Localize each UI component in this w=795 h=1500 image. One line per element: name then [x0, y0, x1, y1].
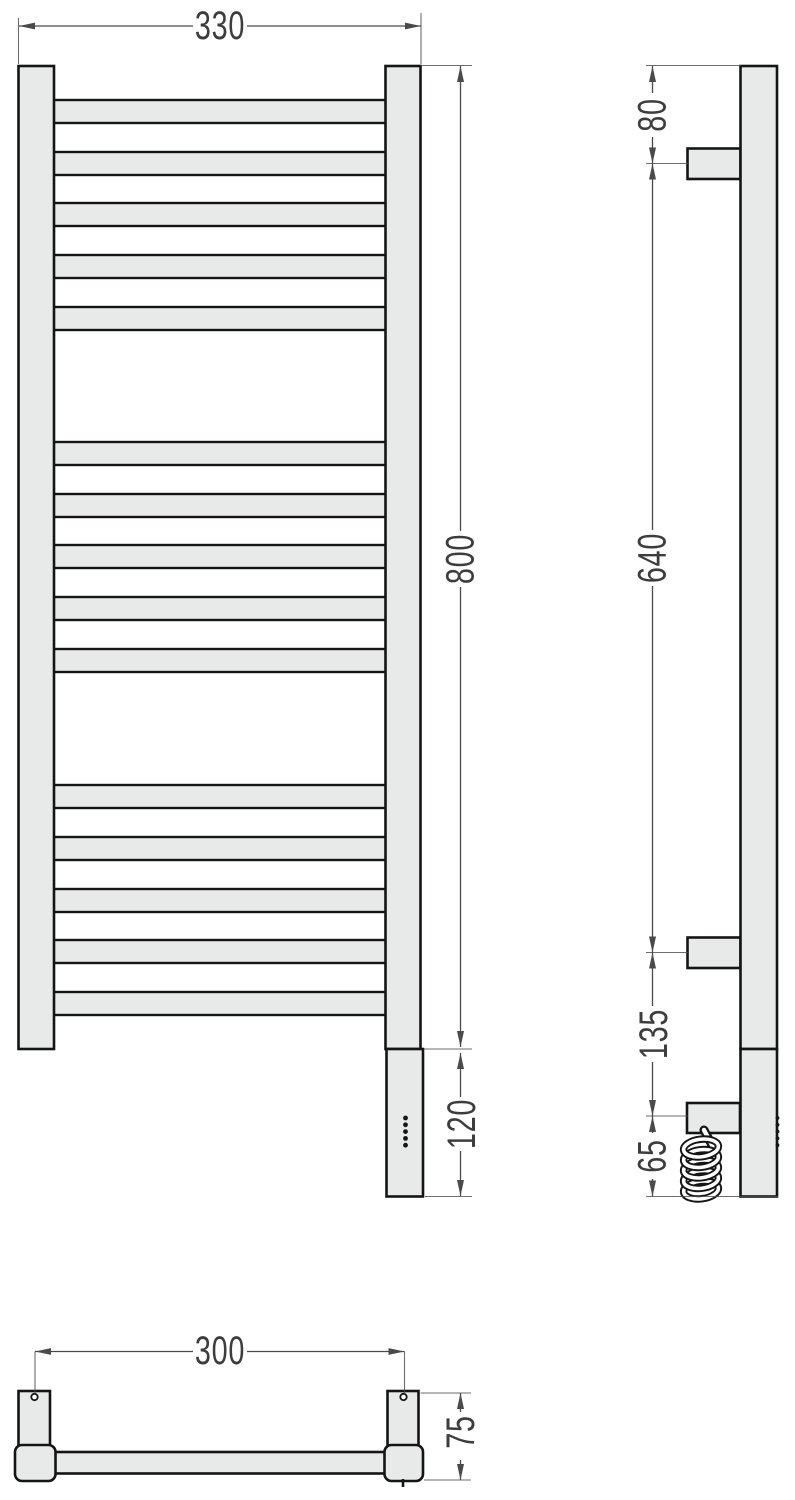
dimension-arrow [405, 23, 421, 30]
dimension-arrow [457, 1053, 464, 1069]
rung [51, 889, 388, 912]
dimension-arrow [649, 1116, 656, 1132]
led-dot [403, 1143, 408, 1148]
dimension-arrow [649, 1181, 656, 1197]
rung [51, 307, 388, 330]
side-wall-bracket-bottom [688, 938, 741, 969]
dimension-arrow [649, 66, 656, 82]
led-dot [403, 1116, 408, 1121]
front-right-rail [386, 66, 421, 1049]
dim-label-plan-depth: 75 [439, 1415, 484, 1448]
led-dot [403, 1136, 408, 1141]
rung [51, 152, 388, 175]
front-view [19, 66, 424, 1197]
dim-label-heater-height: 120 [440, 1099, 485, 1149]
dim-label-side-bracket-span: 640 [630, 533, 675, 583]
mount-hole-right [400, 1394, 406, 1400]
led-dot [403, 1122, 408, 1127]
dimension-arrow [649, 164, 656, 180]
rung [51, 837, 388, 860]
drawing-svg: 330 800 120 80 640 135 [0, 0, 795, 1500]
side-rail [741, 66, 778, 1049]
led-dot [776, 1123, 780, 1127]
dimension-arrow [389, 1348, 405, 1355]
rung [51, 100, 388, 123]
led-dot [776, 1130, 780, 1134]
side-heater-housing [741, 1049, 778, 1197]
rung [51, 992, 388, 1015]
power-cable-coil [683, 1130, 720, 1201]
dim-label-front-width: 330 [195, 4, 245, 49]
dimension-arrow [457, 1393, 464, 1409]
dimension-arrow [649, 148, 656, 164]
mount-hole-left [31, 1394, 37, 1400]
rung [51, 545, 388, 568]
led-dot [403, 1129, 408, 1134]
front-left-rail [19, 66, 55, 1049]
plan-view [15, 1391, 423, 1487]
dimension-arrow [457, 1031, 464, 1047]
rung [51, 785, 388, 808]
dimension-arrow [457, 66, 464, 82]
dim-label-side-cable-to-bottom: 65 [630, 1139, 675, 1172]
rung [51, 597, 388, 620]
rung [51, 442, 388, 465]
rung [51, 649, 388, 672]
plan-bottom-rung [53, 1452, 387, 1474]
dimension-arrow [19, 23, 35, 30]
dim-label-side-top-offset: 80 [630, 98, 675, 131]
led-dot [776, 1143, 780, 1147]
dim-label-front-height: 800 [438, 534, 483, 584]
side-wall-bracket-top [688, 149, 741, 180]
technical-drawing-canvas: 330 800 120 80 640 135 [0, 0, 795, 1500]
led-dot [776, 1137, 780, 1141]
side-view [683, 66, 780, 1201]
front-rungs [51, 100, 388, 1015]
dimension-arrow [649, 953, 656, 969]
rung [51, 494, 388, 517]
side-cable-block [687, 1103, 740, 1133]
plan-rail-right [385, 1445, 424, 1481]
dimension-arrow [649, 937, 656, 953]
rung [51, 255, 388, 278]
led-dot [776, 1116, 780, 1120]
rung [51, 940, 388, 963]
dimension-arrow [457, 1464, 464, 1480]
dimension-arrow [35, 1348, 51, 1355]
dim-label-side-bracket-to-cable: 135 [632, 1009, 677, 1059]
dimension-arrow [457, 1180, 464, 1196]
plan-rail-left [15, 1445, 56, 1481]
rung [51, 203, 388, 226]
dim-label-plan-mount-span: 300 [195, 1329, 245, 1374]
dimension-arrow [649, 1100, 656, 1116]
